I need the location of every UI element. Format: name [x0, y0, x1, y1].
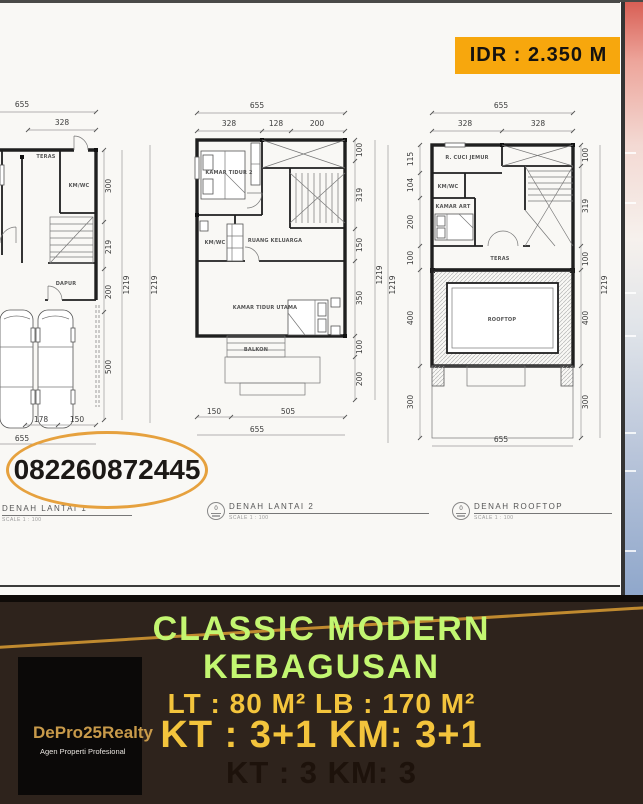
dim-label: 219: [104, 240, 113, 255]
plan-title-text: DENAH LANTAI 2: [229, 502, 429, 514]
plan3-rooftop-deck: [432, 270, 573, 438]
dim-label: 300: [406, 395, 415, 410]
dim-label: 1219: [375, 265, 384, 284]
page-bottom-edge: [0, 585, 622, 587]
room-label: TERAS: [490, 256, 509, 262]
sheet-number-circle: 0: [207, 502, 225, 520]
plan1-dimensions-top: 655 328: [0, 100, 98, 132]
dim-label: 150: [355, 238, 364, 253]
dim-label: 505: [281, 407, 296, 416]
price-badge: IDR : 2.350 M: [455, 37, 622, 74]
plan3-dimensions-top: 655 328 328: [430, 101, 575, 133]
edge-tick: [625, 550, 636, 552]
headline-line-1: CLASSIC MODERN: [0, 610, 643, 649]
room-label: TERAS: [36, 154, 55, 160]
dim-label: 319: [581, 199, 590, 214]
flyer-canvas: 655 328: [0, 0, 643, 804]
dim-label: 300: [104, 179, 113, 194]
plan-scale-text: SCALE 1 : 100: [474, 515, 612, 521]
dim-label: 400: [581, 311, 590, 326]
dim-label: 1219: [600, 275, 609, 294]
plan3-void-cross: [502, 145, 573, 166]
floor-plan-rooftop: 655 328 328: [395, 95, 613, 515]
dim-label: 150: [207, 407, 222, 416]
room-label: ROOFTOP: [488, 317, 517, 323]
dim-label: 100: [355, 340, 364, 355]
dim-label: 200: [355, 372, 364, 387]
plan3-dimensions-left: 115 104 200 100 400 300: [406, 143, 422, 440]
plan3-stairs-icon: [525, 166, 573, 246]
dim-label: 500: [104, 360, 113, 375]
dim-label: 1219: [150, 275, 159, 294]
dim-label: 328: [222, 119, 237, 128]
plan3-bed-icon: [435, 214, 473, 240]
room-label: KM/WC: [438, 184, 459, 190]
room-label: KAMAR TIDUR 2: [205, 170, 253, 176]
edge-tick: [625, 470, 636, 472]
dim-label: 655: [250, 425, 265, 434]
dim-label: 655: [15, 100, 30, 109]
plan2-balcony: [225, 336, 320, 395]
dim-label: 100: [406, 251, 415, 266]
room-label: DAPUR: [56, 281, 77, 287]
plan1-room-labels: TERAS KM/WC DAPUR: [36, 154, 89, 287]
plan1-stairs-icon: [50, 217, 93, 263]
room-label: KM/WC: [69, 183, 90, 189]
dim-label: 178: [34, 415, 49, 424]
plan1-dimensions-right: 300 219 200 500 1219 1219: [102, 145, 159, 423]
plan2-dimensions-top: 655 328 128 200: [195, 101, 347, 133]
dim-label: 1219: [122, 275, 131, 294]
room-label: RUANG KELUARGA: [248, 238, 302, 244]
plan2-stairs-icon: [290, 173, 345, 223]
edge-tick: [625, 432, 636, 434]
plan2-dimensions-bottom: 150 505 655: [195, 407, 347, 435]
sheet-number-circle: 0: [452, 502, 470, 520]
plan-scale-text: SCALE 1 : 100: [229, 515, 429, 521]
page-top-edge: [0, 0, 643, 3]
dim-label: 200: [310, 119, 325, 128]
plan2-master-bed-icon: [288, 298, 340, 335]
phone-ellipse: 082260872445: [6, 431, 208, 509]
room-label: KAMAR TIDUR UTAMA: [233, 305, 297, 311]
dim-label: 350: [355, 291, 364, 306]
plan-title-rooftop: 0 DENAH ROOFTOP SCALE 1 : 100: [452, 502, 612, 521]
edge-tick: [625, 292, 636, 294]
plan1-carport-cars-icon: [0, 305, 99, 428]
room-label: BALKON: [244, 347, 268, 353]
spec-bedrooms-bathrooms: KT : 3+1 KM: 3+1: [0, 714, 643, 757]
headline-line-2: KEBAGUSAN: [0, 648, 643, 687]
plan2-void-cross: [262, 140, 345, 168]
dim-label: 328: [531, 119, 546, 128]
sheet-number: 0: [456, 506, 465, 514]
price-text: IDR : 2.350 M: [470, 44, 607, 67]
dim-label: 319: [355, 188, 364, 203]
plan-title-text: DENAH ROOFTOP: [474, 502, 612, 514]
floor-plan-lantai-2: 655 328 128 200: [185, 95, 400, 515]
dim-label: 100: [581, 148, 590, 163]
room-label: KM/WC: [205, 240, 226, 246]
plan-scale-text: SCALE 1 : 100: [2, 517, 132, 523]
dim-label: 200: [104, 285, 113, 300]
page-edge-gradient: [625, 2, 643, 596]
edge-tick: [625, 152, 636, 154]
phone-number: 082260872445: [14, 454, 201, 486]
dim-label: 104: [406, 178, 415, 193]
dim-label: 100: [581, 252, 590, 267]
dim-label: 400: [406, 311, 415, 326]
plan2-dimensions-right: 100 319 150 350 100 200 1219 1219: [353, 138, 397, 443]
dim-label: 115: [406, 152, 415, 167]
spec-secondary: KT : 3 KM: 3: [0, 755, 643, 791]
dim-label: 100: [355, 143, 364, 158]
dim-label: 655: [250, 101, 265, 110]
sheet-number: 0: [211, 506, 220, 514]
dim-label: 328: [55, 118, 70, 127]
edge-tick: [625, 202, 636, 204]
footer-banner: DePro25Realty Agen Properti Profesional …: [0, 595, 643, 804]
dim-label: 128: [269, 119, 284, 128]
plan3-dimensions-right: 100 319 100 400 300 1219: [579, 143, 609, 440]
dim-label: 300: [581, 395, 590, 410]
plan3-dimensions-bottom: 655: [432, 435, 573, 446]
room-label: KAMAR ART: [436, 204, 471, 210]
dim-label: 150: [70, 415, 85, 424]
plan-title-lantai-2: 0 DENAH LANTAI 2 SCALE 1 : 100: [207, 502, 429, 521]
dim-label: 655: [494, 435, 509, 444]
dim-label: 655: [494, 101, 509, 110]
dim-label: 328: [458, 119, 473, 128]
plan1-walls: [0, 136, 98, 300]
edge-tick: [625, 335, 636, 337]
dim-label: 655: [15, 434, 30, 443]
dim-label: 200: [406, 215, 415, 230]
room-label: R. CUCI JEMUR: [445, 155, 488, 161]
